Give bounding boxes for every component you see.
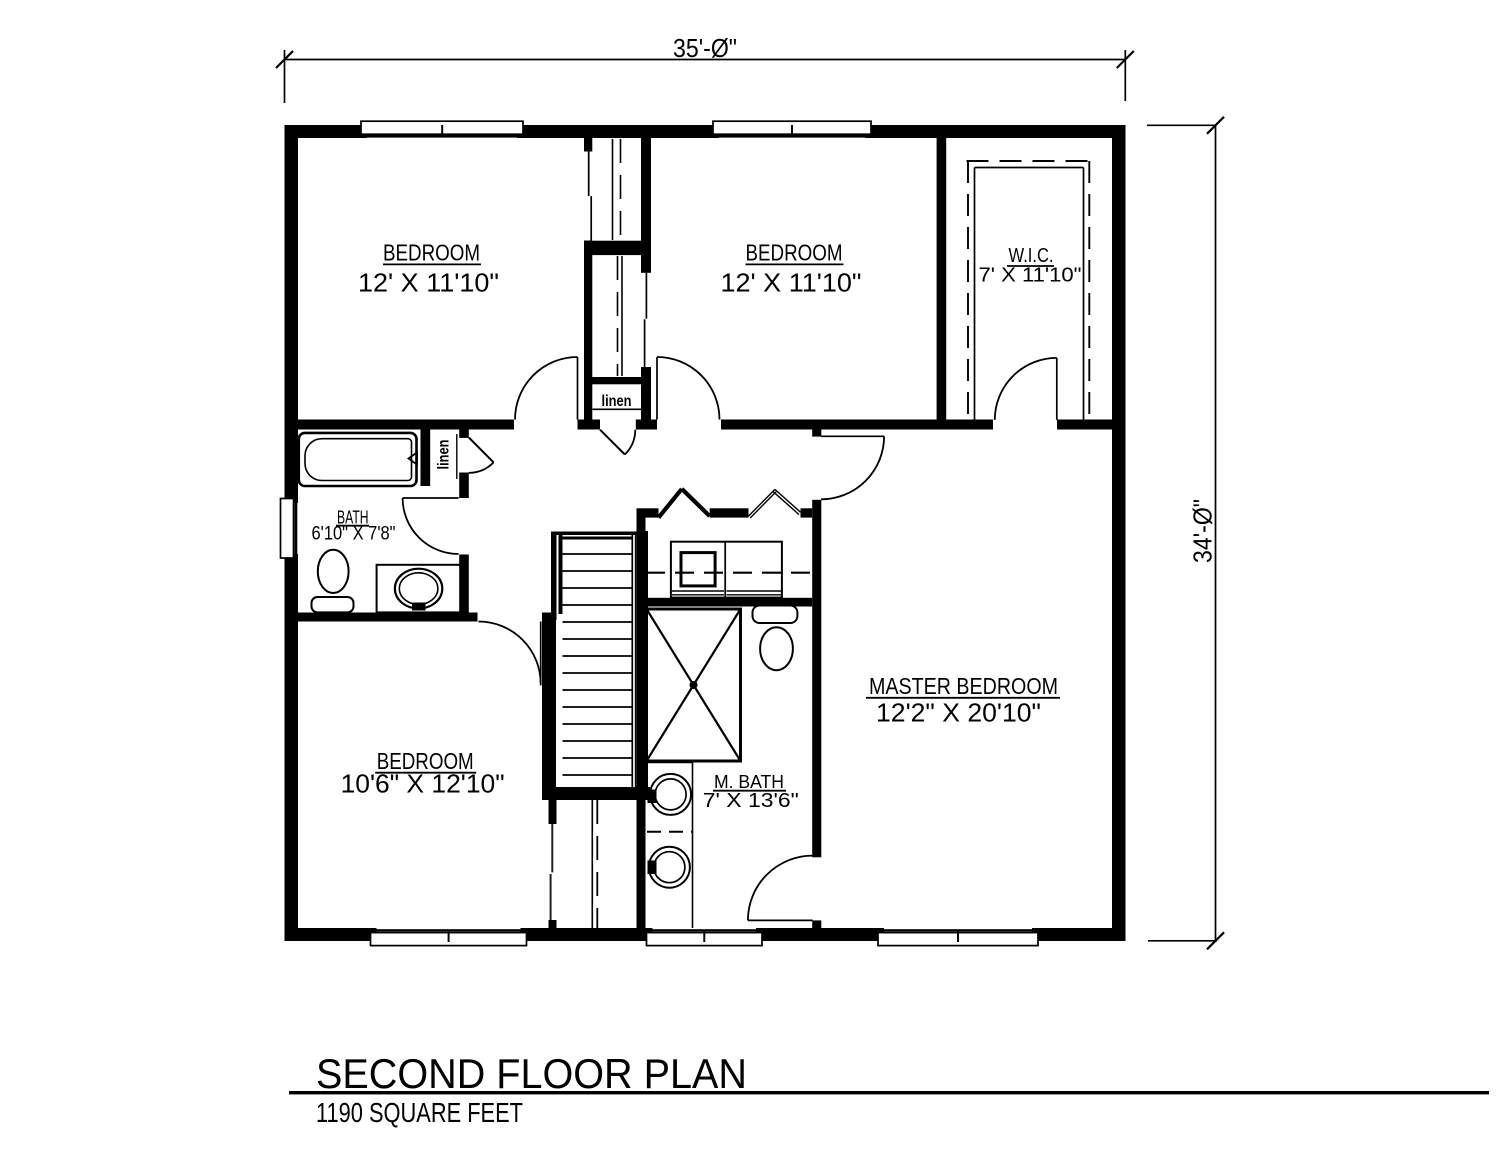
svg-text:1190 SQUARE FEET: 1190 SQUARE FEET (316, 1097, 523, 1128)
svg-text:7' X 13'6": 7' X 13'6" (703, 790, 799, 812)
svg-text:7' X 11'10": 7' X 11'10" (979, 265, 1082, 287)
svg-text:12' X 11'10": 12' X 11'10" (358, 268, 499, 298)
svg-text:34'-Ø": 34'-Ø" (1188, 499, 1218, 563)
svg-text:10'6" X 12'10": 10'6" X 12'10" (341, 769, 505, 799)
svg-text:MASTER BEDROOM: MASTER BEDROOM (869, 673, 1058, 699)
svg-text:BEDROOM: BEDROOM (746, 240, 843, 266)
svg-text:BEDROOM: BEDROOM (383, 240, 480, 266)
svg-text:linen: linen (602, 393, 632, 410)
svg-text:6'10" X 7'8": 6'10" X 7'8" (312, 524, 396, 545)
svg-text:12' X 11'10": 12' X 11'10" (721, 268, 862, 298)
svg-text:35'-Ø": 35'-Ø" (673, 33, 737, 63)
svg-text:12'2" X 20'10": 12'2" X 20'10" (876, 698, 1041, 728)
svg-text:SECOND FLOOR PLAN: SECOND FLOOR PLAN (316, 1050, 747, 1097)
svg-text:M. BATH: M. BATH (714, 772, 784, 792)
svg-text:linen: linen (436, 440, 453, 470)
